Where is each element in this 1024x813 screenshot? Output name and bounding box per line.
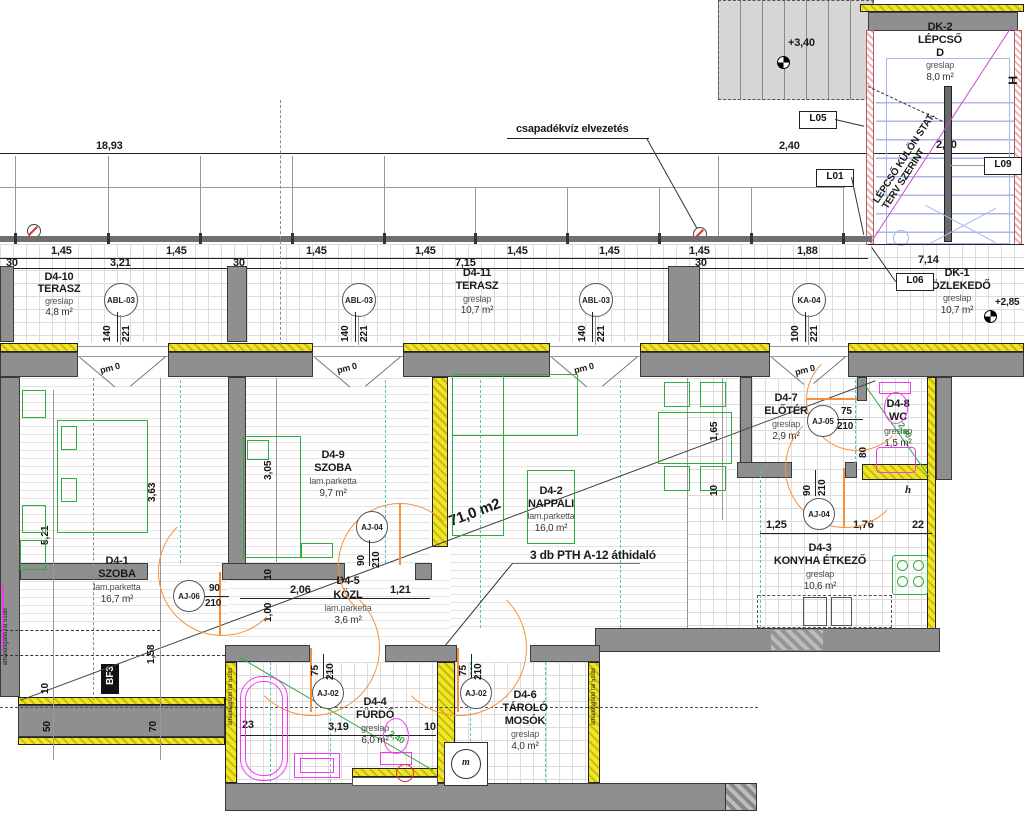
wall — [640, 352, 770, 377]
window-height: 221 — [359, 312, 370, 342]
bathtub-inner — [245, 681, 283, 776]
dim-text: 2,40 — [779, 141, 800, 153]
witness-line — [200, 156, 201, 236]
nightstand — [301, 543, 333, 558]
terrace-pier — [668, 266, 700, 342]
axis-line — [280, 100, 281, 345]
room-id: DK-2 — [928, 22, 953, 34]
fraction-divider — [471, 654, 472, 678]
dim-text: 1,58 — [146, 628, 157, 664]
beam-dashed-line — [0, 630, 160, 631]
door-width: 75 — [310, 656, 321, 676]
room-name: TERASZ — [38, 284, 81, 296]
toilet-bowl — [383, 718, 409, 754]
room-id: D4-3 — [808, 543, 831, 555]
door-height: 210 — [205, 599, 221, 610]
window-width: 140 — [340, 314, 351, 342]
pillow — [247, 440, 269, 460]
door-tag-aj06: AJ-06 — [173, 580, 205, 612]
wall-exterior-bottom — [225, 783, 757, 811]
room-id: D4-11 — [463, 268, 491, 280]
threshold-level: pm 0 — [336, 362, 358, 376]
window-width: 140 — [102, 314, 113, 342]
room-finish: lam.parketta — [309, 477, 356, 486]
wall — [0, 352, 78, 377]
door-tag-aj02: AJ-02 — [312, 677, 344, 709]
stair-wall — [866, 30, 874, 245]
room-area: 16,7 m² — [101, 595, 134, 606]
beam-dashed-line — [0, 655, 225, 656]
door-frame — [313, 346, 403, 347]
railing-post — [474, 233, 477, 244]
toilet-tank — [380, 752, 412, 765]
door-swing-arc — [391, 580, 527, 716]
label-l06: L06 — [896, 273, 934, 291]
dim-text: 1,45 — [415, 246, 436, 258]
room-area: 10,7 m² — [461, 306, 494, 317]
insulation-strip — [18, 697, 225, 705]
insulation-strip — [0, 343, 78, 352]
lintel-note: 3 db PTH A-12 áthidaló — [530, 549, 656, 562]
dim-text: 3,63 — [147, 462, 158, 502]
level-text: +3,40 — [788, 38, 815, 50]
sofa-l-shape — [452, 374, 504, 536]
kitchen-cabinet — [803, 597, 827, 626]
room-name: ELŐTÉR — [764, 406, 807, 418]
stove-burner — [897, 560, 908, 571]
room-area: 9,7 m² — [319, 489, 346, 500]
door-width: 90 — [209, 584, 220, 595]
witness-line — [751, 188, 752, 236]
room-name2: MOSÓK — [505, 716, 546, 728]
door-frame — [550, 346, 640, 347]
railing-post — [658, 233, 661, 244]
door-width: 90 — [802, 472, 813, 496]
railing-post — [383, 233, 386, 244]
acoustic-wall-note: áthallásgátló fal 51dB — [3, 608, 9, 665]
fraction-divider — [805, 312, 806, 342]
machine-label: m — [462, 757, 470, 768]
window-width: 140 — [577, 314, 588, 342]
room-finish: greslap — [463, 295, 491, 304]
chair — [700, 466, 726, 491]
window-height: 221 — [596, 312, 607, 342]
door-frame — [313, 356, 403, 357]
bf3-label: BF3 — [105, 666, 116, 685]
room-id: DK-1 — [945, 268, 970, 280]
railing-post — [291, 233, 294, 244]
nightstand — [22, 505, 46, 533]
insulation-strip — [848, 343, 1024, 352]
terrace-pier — [0, 266, 14, 342]
stair-landing-slab — [718, 0, 874, 100]
dim-text: 1,45 — [599, 246, 620, 258]
room-name: TERASZ — [456, 281, 499, 293]
door-tag-aj02: AJ-02 — [460, 677, 492, 709]
terrace-pier — [227, 266, 247, 342]
room-id: D4-7 — [774, 393, 797, 405]
label-l05: L05 — [799, 111, 837, 129]
door-height: 210 — [473, 652, 484, 680]
toilet-bowl — [884, 392, 908, 424]
acoustic-wall-note: áthallásgátló fal 51dB — [228, 668, 234, 725]
room-finish: greslap — [943, 294, 971, 303]
room-name: SZOBA — [98, 569, 136, 581]
chair — [664, 466, 690, 491]
room-area: 10,6 m² — [804, 582, 837, 593]
witness-line — [843, 188, 844, 236]
stove-burner — [897, 576, 908, 587]
room-finish: greslap — [511, 730, 539, 739]
level-text: +2,85 — [995, 298, 1019, 309]
door-height: 210 — [817, 468, 828, 496]
dim-text: 18,93 — [96, 141, 123, 153]
insulation-strip — [168, 343, 313, 352]
sink-inner — [300, 758, 334, 773]
chair — [664, 382, 690, 407]
door-tag-aj04: AJ-04 — [803, 498, 835, 530]
wall-acoustic-right — [927, 377, 936, 640]
note-underline — [507, 138, 649, 139]
floor-drain — [396, 764, 414, 782]
leader-line — [851, 177, 864, 235]
acoustic-wall-note: áthallásgátló fal 51dB — [591, 668, 597, 725]
witness-line — [475, 188, 476, 236]
witness-line — [659, 188, 660, 236]
wall — [740, 377, 752, 467]
window-height: 221 — [121, 312, 132, 342]
witness-line — [718, 156, 719, 240]
dim-text: 7,14 — [918, 255, 939, 267]
slab-edge-line — [0, 187, 845, 188]
witness-line — [292, 156, 293, 236]
railing-post — [107, 233, 110, 244]
level-marker-icon — [777, 56, 790, 69]
dim-text: 22 — [912, 520, 924, 532]
dim-line — [760, 533, 932, 534]
nightstand — [22, 390, 46, 418]
insulation-strip — [352, 768, 438, 777]
room-id: D4-4 — [363, 697, 386, 709]
dim-line — [0, 268, 1024, 269]
fraction-divider — [323, 654, 324, 678]
room-name: LÉPCSŐ — [918, 35, 962, 47]
room-area: 10,7 m² — [941, 306, 974, 317]
railing-post — [14, 233, 17, 244]
witness-line — [53, 390, 54, 760]
dim-text: 10 — [424, 722, 436, 734]
fraction-divider — [205, 596, 229, 597]
witness-line — [384, 156, 385, 236]
dim-text: 10 — [40, 676, 51, 694]
wall — [737, 462, 792, 478]
stair-wall — [1014, 30, 1022, 245]
stove-burner — [913, 560, 924, 571]
wall — [530, 645, 600, 662]
threshold-level: pm 0 — [99, 362, 121, 376]
insulation-strip — [860, 4, 1024, 12]
door-width: 100 — [790, 314, 801, 342]
axis-teal — [620, 380, 621, 628]
wall-niche — [352, 777, 438, 786]
railing-bar — [0, 236, 872, 242]
door-frame — [78, 356, 168, 357]
label-l09: L09 — [984, 157, 1022, 175]
pillow — [61, 478, 77, 502]
door-width: 90 — [356, 542, 367, 566]
room-area: 8,0 m² — [926, 73, 953, 84]
wall-hatched — [725, 783, 757, 811]
door-height: 221 — [809, 312, 820, 342]
leader-line — [835, 119, 864, 127]
section-marker-h: H — [1006, 76, 1020, 85]
fraction-divider — [592, 312, 593, 342]
door-frame — [550, 356, 640, 357]
dim-text: 1,45 — [689, 246, 710, 258]
room-finish: lam.parketta — [93, 583, 140, 592]
dim-text: 3,21 — [110, 258, 131, 270]
railing-post — [750, 233, 753, 244]
dim-text: 1,25 — [766, 520, 787, 532]
note-underline — [512, 563, 640, 564]
room-id: D4-9 — [321, 450, 344, 462]
kitchen-cabinet — [831, 597, 852, 626]
drain-slash-icon — [28, 226, 38, 236]
door-frame — [78, 346, 168, 347]
wardrobe — [20, 540, 46, 570]
insulation-strip — [18, 737, 225, 745]
fraction-divider — [815, 470, 816, 496]
wall — [168, 352, 313, 377]
wall — [595, 628, 940, 652]
label-l01: L01 — [816, 169, 854, 187]
fraction-divider — [369, 540, 370, 566]
room-name: TÁROLÓ — [502, 703, 547, 715]
chair — [700, 382, 726, 407]
room-area: 4,8 m² — [45, 308, 72, 319]
dim-text: 1,45 — [507, 246, 528, 258]
coffee-table — [527, 470, 575, 544]
dim-text: 70 — [148, 708, 159, 732]
door-width: 75 — [458, 656, 469, 676]
room-id: D4-10 — [45, 272, 74, 284]
witness-line — [108, 156, 109, 236]
door-height: 210 — [371, 540, 382, 568]
dim-line-top — [0, 153, 1015, 154]
room-name2: D — [936, 48, 944, 60]
insulation-strip — [640, 343, 770, 352]
room-finish: greslap — [926, 61, 954, 70]
door-height: 210 — [325, 652, 336, 680]
dim-text: 1,45 — [166, 246, 187, 258]
dim-text: 1,45 — [51, 246, 72, 258]
wall-hatched — [771, 630, 823, 650]
level-marker-icon — [984, 310, 997, 323]
dim-text: 1,45 — [306, 246, 327, 258]
room-finish: greslap — [806, 570, 834, 579]
floor-plan-canvas: 18,93 2,40 2,30 csapadékvíz elvezetés +3… — [0, 0, 1024, 813]
room-area: 4,0 m² — [511, 742, 538, 753]
wall — [936, 377, 952, 480]
witness-line — [15, 156, 16, 236]
fraction-divider — [355, 312, 356, 342]
room-id: D4-1 — [105, 556, 128, 568]
insulation-strip — [403, 343, 550, 352]
pillow — [61, 426, 77, 450]
door-tag-aj04: AJ-04 — [356, 511, 388, 543]
stove-burner — [913, 576, 924, 587]
height-symbol: h — [905, 484, 911, 496]
door-frame — [770, 346, 848, 347]
railing-post — [199, 233, 202, 244]
room-name: SZOBA — [314, 463, 352, 475]
leader-line — [950, 165, 984, 166]
room-finish: greslap — [45, 297, 73, 306]
railing-post — [842, 233, 845, 244]
corridor-edge — [868, 244, 1024, 245]
dining-table — [658, 412, 732, 464]
rainwater-note: csapadékvíz elvezetés — [516, 124, 629, 136]
dim-text: 3,19 — [328, 722, 349, 734]
railing-post — [566, 233, 569, 244]
sink — [876, 447, 916, 473]
room-id: D4-6 — [513, 690, 536, 702]
fraction-divider — [117, 312, 118, 342]
room-name: KONYHA ÉTKEZŐ — [774, 556, 866, 568]
dim-text: 1,88 — [797, 246, 818, 258]
dim-text: 50 — [42, 708, 53, 732]
room-finish: greslap — [772, 420, 800, 429]
witness-line — [567, 188, 568, 236]
